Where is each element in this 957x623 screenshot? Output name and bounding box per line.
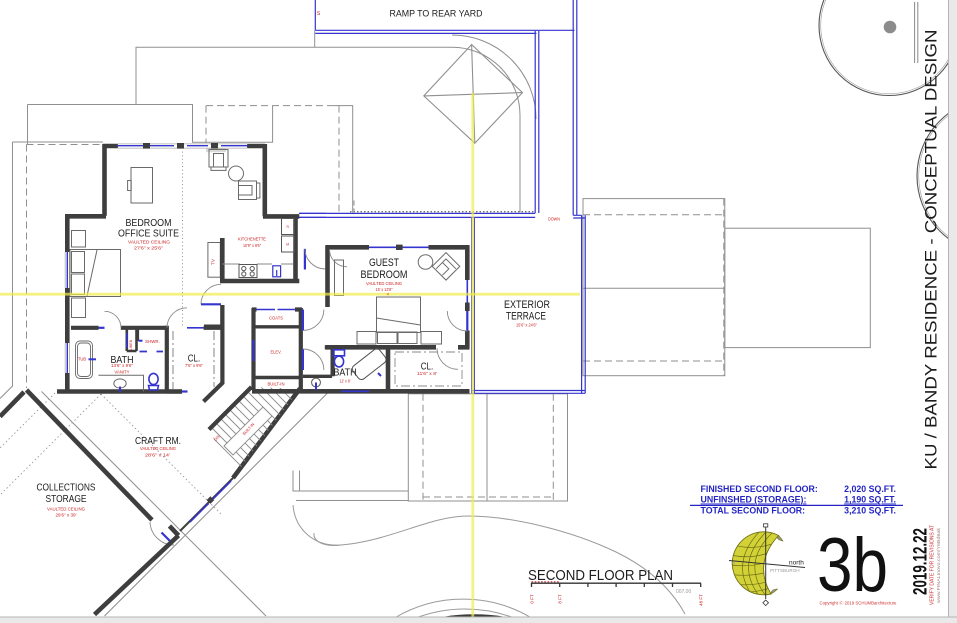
svg-text:RAMP TO REAR YARD: RAMP TO REAR YARD (390, 9, 483, 20)
svg-text:12' x 8': 12' x 8' (340, 378, 351, 383)
svg-text:SECOND FLOOR PLAN: SECOND FLOOR PLAN (528, 568, 673, 584)
svg-text:Copyright Ⓒ 2019 SCHUMBarchite: Copyright Ⓒ 2019 SCHUMBarchitecture (820, 600, 898, 607)
svg-text:VAULTED CEILING: VAULTED CEILING (140, 446, 177, 451)
svg-text:north: north (789, 560, 804, 567)
svg-text:3b: 3b (817, 523, 888, 608)
svg-text:11'6" x 8': 11'6" x 8' (417, 371, 437, 376)
svg-text:COATS: COATS (269, 316, 283, 322)
svg-text:VAULTED CEILING: VAULTED CEILING (366, 281, 403, 286)
svg-text:29'6" x 39': 29'6" x 39' (56, 513, 77, 518)
svg-text:10'9" x 8'6": 10'9" x 8'6" (243, 243, 261, 248)
svg-text:CRAFT RM.: CRAFT RM. (135, 435, 181, 447)
svg-text:FINISHED SECOND FLOOR:: FINISHED SECOND FLOOR: (701, 484, 818, 494)
svg-text:1,190 SQ.FT.: 1,190 SQ.FT. (844, 495, 896, 505)
svg-text:PITTSBURGH: PITTSBURGH (770, 568, 800, 573)
svg-text:2019.12.22: 2019.12.22 (910, 528, 932, 595)
svg-text:TV: TV (211, 258, 217, 265)
svg-text:BUILT-IN: BUILT-IN (268, 381, 285, 387)
svg-text:7'6" x 9'6": 7'6" x 9'6" (185, 363, 203, 368)
svg-text:13'6" x 9'6": 13'6" x 9'6" (111, 363, 133, 368)
svg-text:ELEV.: ELEV. (271, 350, 282, 356)
svg-text:15' x 13'8": 15' x 13'8" (376, 287, 393, 292)
svg-text:007.00: 007.00 (676, 589, 692, 595)
svg-text:VAULTED CEILING: VAULTED CEILING (47, 507, 86, 512)
svg-text:VANITY: VANITY (115, 370, 130, 375)
svg-text:VERIFY DATE FOR REVISIONS AT: VERIFY DATE FOR REVISIONS AT (930, 525, 936, 605)
svg-text:LINEN: LINEN (129, 339, 133, 350)
svg-text:www.FINALInovo.com/Y6Bd6ak: www.FINALInovo.com/Y6Bd6ak (936, 527, 942, 603)
svg-text:75: 75 (731, 562, 735, 566)
svg-text:BEDROOM: BEDROOM (361, 269, 408, 281)
svg-text:3,210 SQ.FT.: 3,210 SQ.FT. (844, 506, 896, 516)
svg-text:OFFICE SUITE: OFFICE SUITE (118, 227, 179, 239)
svg-text:DOWN: DOWN (548, 217, 560, 222)
svg-text:KU / BANDY RESIDENCE - CONCEPT: KU / BANDY RESIDENCE - CONCEPTUAL DESIGN (922, 30, 941, 470)
svg-text:UNFINSHED (STORAGE):: UNFINSHED (STORAGE): (701, 495, 807, 505)
svg-text:COLLECTIONS: COLLECTIONS (37, 482, 96, 494)
svg-text:TERRACE: TERRACE (506, 311, 546, 323)
svg-text:STORAGE: STORAGE (46, 493, 87, 505)
svg-text:8 FT: 8 FT (558, 594, 563, 604)
svg-text:0 FT: 0 FT (530, 594, 535, 604)
svg-text:2,020 SQ.FT.: 2,020 SQ.FT. (844, 484, 896, 494)
svg-text:48 FT: 48 FT (699, 594, 704, 606)
svg-text:27'6" x 25'6": 27'6" x 25'6" (134, 245, 163, 250)
svg-text:VAULTED CEILING: VAULTED CEILING (128, 240, 170, 245)
svg-text:TUB: TUB (78, 357, 87, 362)
svg-text:TOTAL SECOND FLOOR:: TOTAL SECOND FLOOR: (701, 506, 806, 516)
svg-text:15'6" x 24'6": 15'6" x 24'6" (516, 322, 537, 327)
svg-text:SHWR.: SHWR. (145, 339, 160, 344)
svg-text:EXTERIOR: EXTERIOR (504, 299, 550, 311)
svg-text:KITCHENETTE: KITCHENETTE (238, 236, 266, 242)
svg-text:M: M (286, 243, 289, 247)
svg-text:BATH: BATH (334, 367, 357, 379)
svg-text:28'6" x 14': 28'6" x 14' (145, 453, 170, 458)
svg-text:GUEST: GUEST (369, 257, 399, 269)
